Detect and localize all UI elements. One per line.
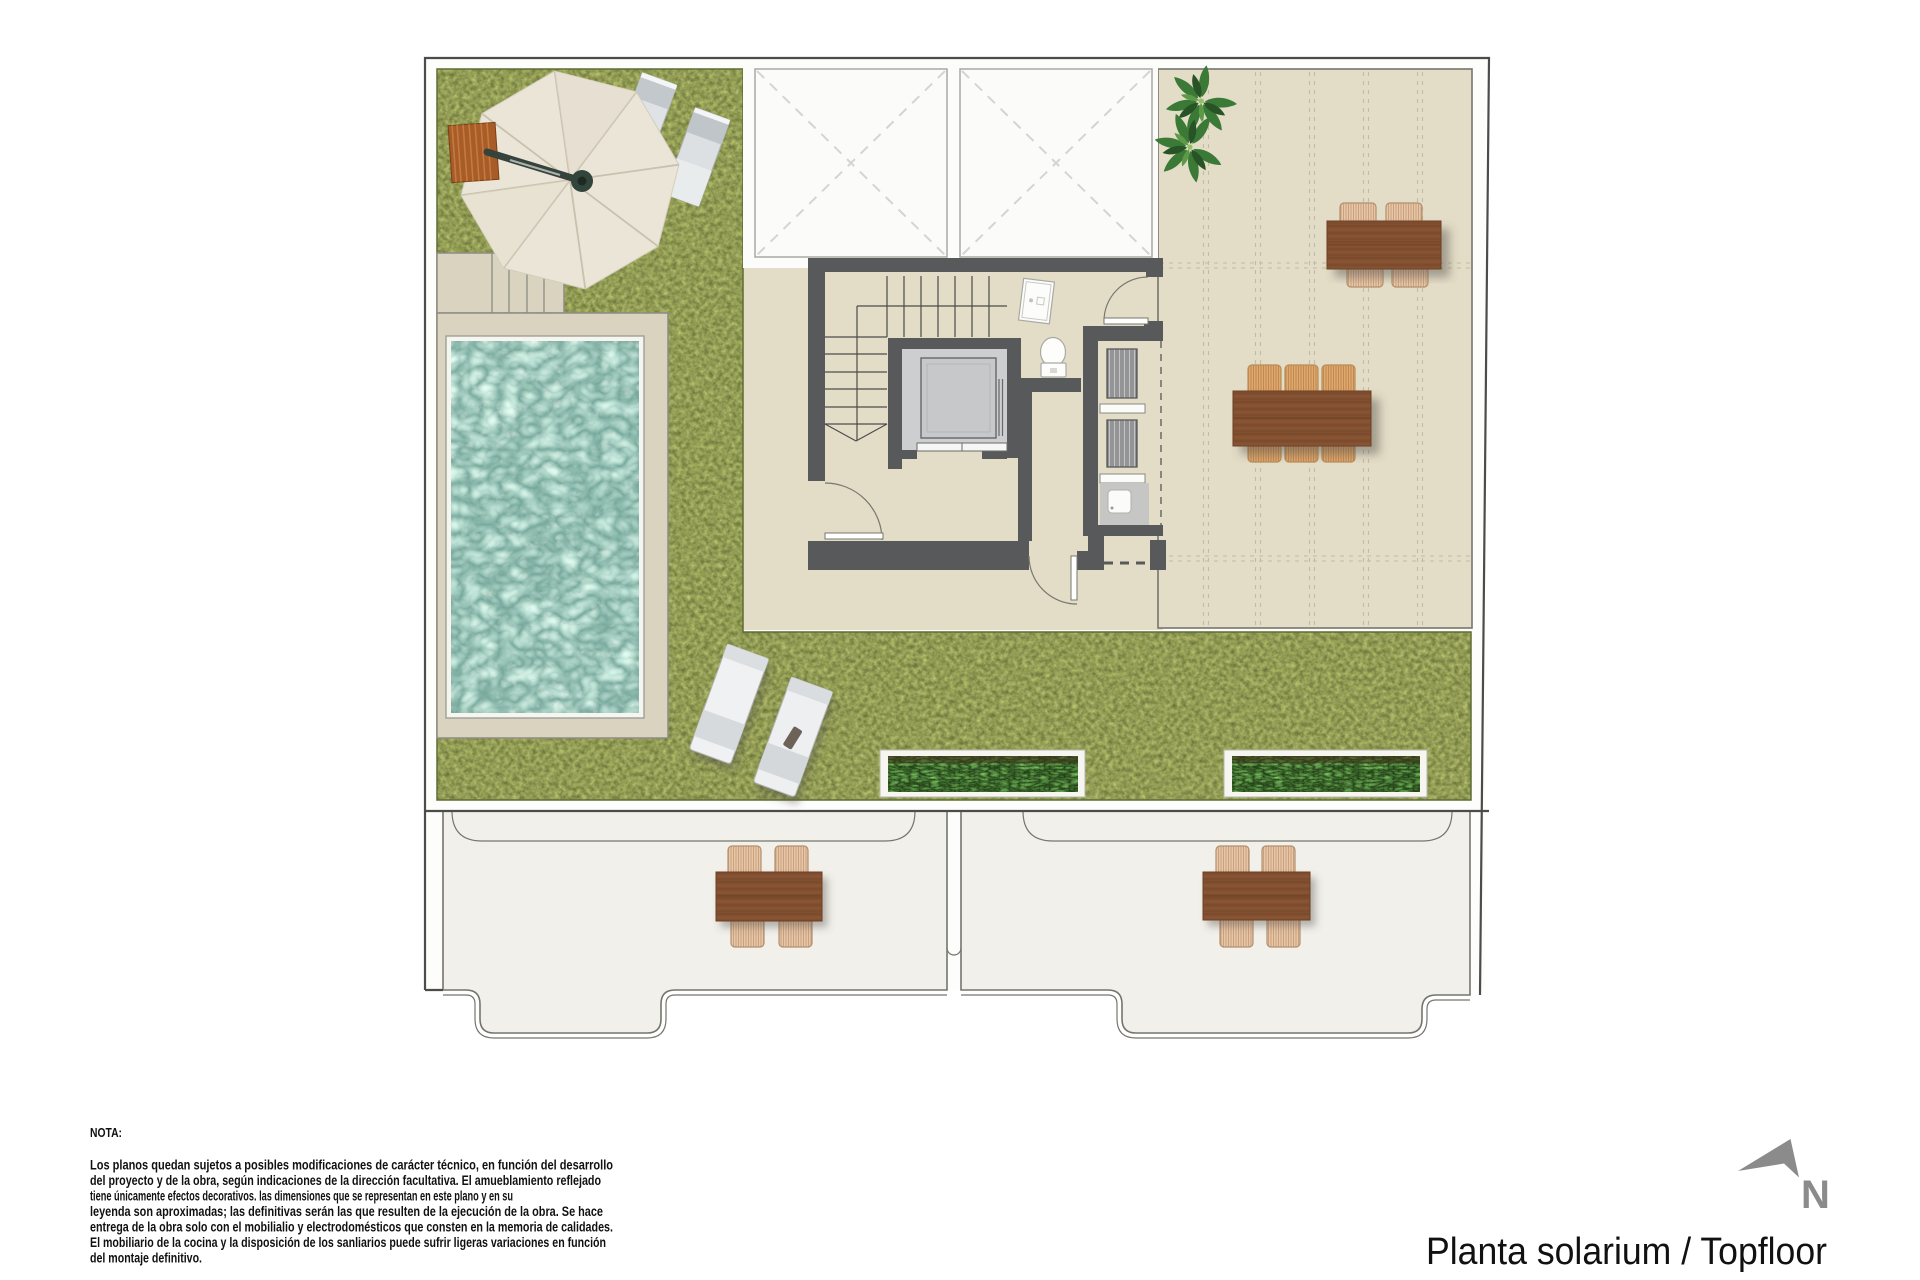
svg-text:Los planos quedan sujetos a po: Los planos quedan sujetos a posibles mod… [90,1157,613,1173]
svg-text:entrega de la obra solo con el: entrega de la obra solo con el mobiliali… [90,1219,613,1235]
svg-text:del montaje definitivo.: del montaje definitivo. [90,1250,202,1266]
svg-text:del proyecto y de la obra, seg: del proyecto y de la obra, según indicac… [90,1172,601,1188]
svg-text:leyenda son aproximadas; las d: leyenda son aproximadas; las definitivas… [90,1203,603,1219]
svg-text:N: N [1801,1173,1830,1217]
svg-text:El mobiliario de la cocina y l: El mobiliario de la cocina y la disposic… [90,1234,606,1250]
svg-text:Planta solarium / Topfloor: Planta solarium / Topfloor [1426,1231,1827,1273]
svg-text:tiene únicamente efectos decor: tiene únicamente efectos decorativos. la… [90,1188,513,1204]
svg-text:NOTA:: NOTA: [90,1126,122,1140]
